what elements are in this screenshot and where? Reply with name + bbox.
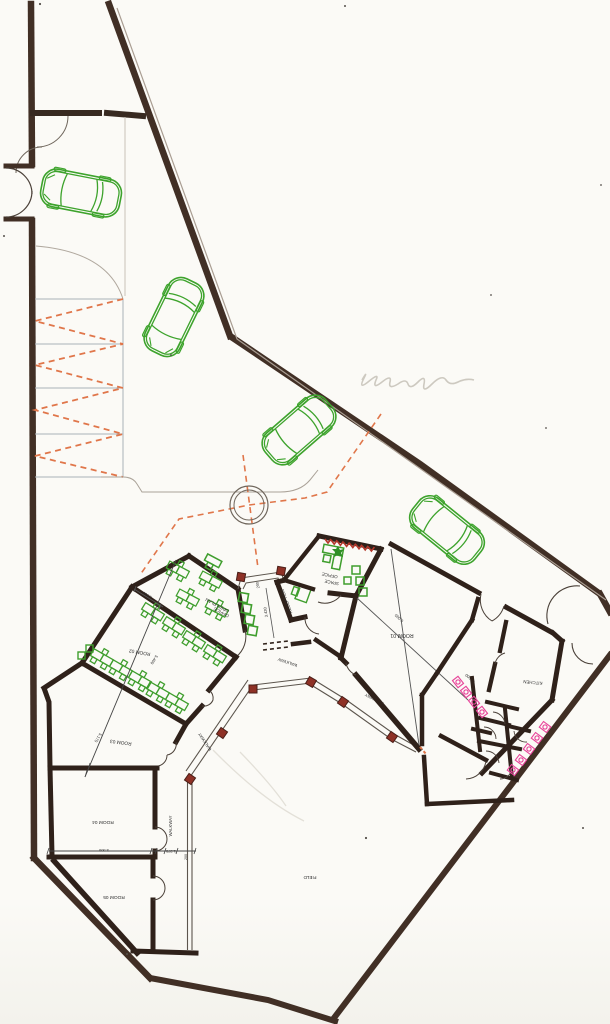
svg-text:5.500: 5.500 xyxy=(98,848,109,853)
svg-text:ROOM 01: ROOM 01 xyxy=(390,632,413,638)
svg-text:1.370: 1.370 xyxy=(165,849,176,854)
svg-text:ROOM 05: ROOM 05 xyxy=(103,894,125,900)
svg-text:200: 200 xyxy=(184,854,188,860)
svg-text:WALKWAY: WALKWAY xyxy=(168,815,173,836)
svg-text:ROOM 04: ROOM 04 xyxy=(92,819,114,825)
svg-text:FIELD: FIELD xyxy=(303,875,317,880)
